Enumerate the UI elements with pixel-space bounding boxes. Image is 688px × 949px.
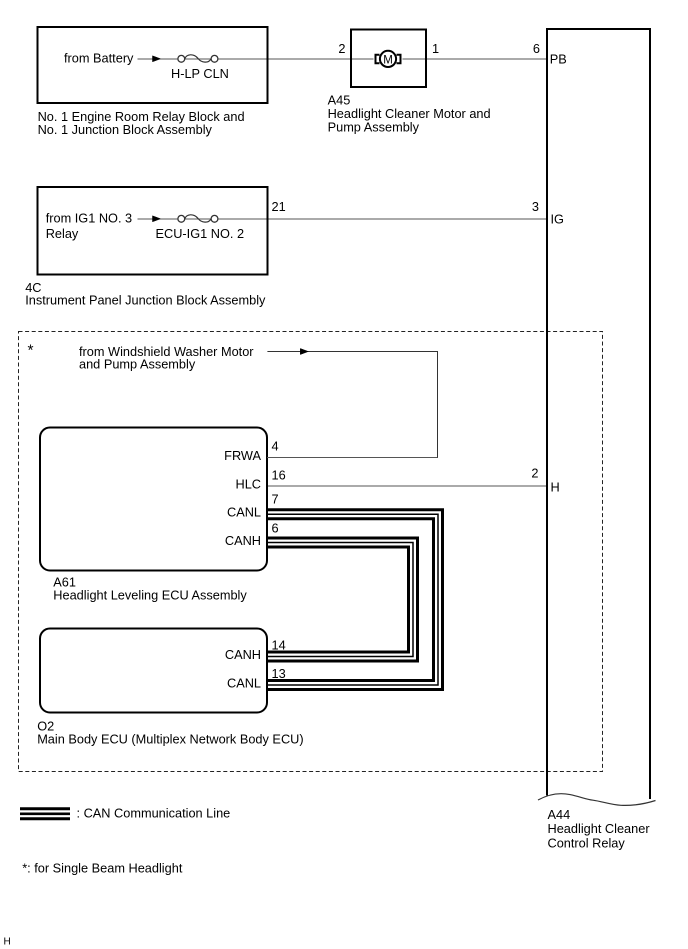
svg-text:Main Body ECU (Multiplex Netwo: Main Body ECU (Multiplex Network Body EC…: [37, 731, 303, 746]
svg-text:H-LP CLN: H-LP CLN: [171, 66, 229, 81]
svg-text:CANL: CANL: [227, 676, 261, 691]
svg-text:CANH: CANH: [225, 647, 261, 662]
svg-text:from Battery: from Battery: [64, 51, 134, 66]
svg-text:1: 1: [432, 41, 439, 56]
svg-text:21: 21: [272, 199, 286, 214]
svg-text:ECU-IG1 NO. 2: ECU-IG1 NO. 2: [156, 226, 245, 241]
svg-text:Headlight Cleaner: Headlight Cleaner: [548, 821, 651, 836]
svg-text:3: 3: [532, 199, 539, 214]
svg-text:CANH: CANH: [225, 533, 261, 548]
svg-text:and Pump Assembly: and Pump Assembly: [79, 357, 196, 372]
svg-text:CANL: CANL: [227, 505, 261, 520]
svg-text:4: 4: [272, 439, 279, 454]
svg-text:Headlight Cleaner Motor and: Headlight Cleaner Motor and: [328, 106, 491, 121]
svg-text:IG: IG: [551, 211, 564, 226]
svg-text:: CAN Communication Line: : CAN Communication Line: [77, 806, 231, 821]
svg-text:13: 13: [272, 666, 286, 681]
svg-text:6: 6: [272, 521, 279, 536]
svg-text:HLC: HLC: [235, 477, 261, 492]
svg-text:7: 7: [272, 491, 279, 506]
svg-text:PB: PB: [550, 52, 567, 67]
svg-text:H: H: [4, 937, 11, 948]
svg-text:14: 14: [272, 638, 286, 653]
svg-text:Instrument Panel Junction Bloc: Instrument Panel Junction Block Assembly: [25, 293, 266, 308]
svg-text:Control Relay: Control Relay: [548, 835, 626, 850]
svg-text:2: 2: [338, 41, 345, 56]
svg-text:Pump Assembly: Pump Assembly: [328, 120, 420, 135]
svg-text:*: for Single Beam Headlight: *: for Single Beam Headlight: [22, 861, 183, 876]
svg-text:6: 6: [533, 41, 540, 56]
svg-text:Headlight Leveling ECU Assembl: Headlight Leveling ECU Assembly: [53, 588, 247, 603]
svg-text:*: *: [28, 343, 34, 360]
svg-text:A44: A44: [548, 807, 571, 822]
svg-text:FRWA: FRWA: [224, 448, 261, 463]
svg-text:No. 1 Junction Block Assembly: No. 1 Junction Block Assembly: [38, 122, 213, 137]
svg-text:M: M: [383, 54, 393, 66]
svg-text:Relay: Relay: [46, 226, 79, 241]
svg-text:H: H: [551, 480, 560, 495]
svg-text:2: 2: [531, 466, 538, 481]
svg-text:from IG1 NO. 3: from IG1 NO. 3: [46, 211, 132, 226]
svg-text:16: 16: [272, 468, 286, 483]
